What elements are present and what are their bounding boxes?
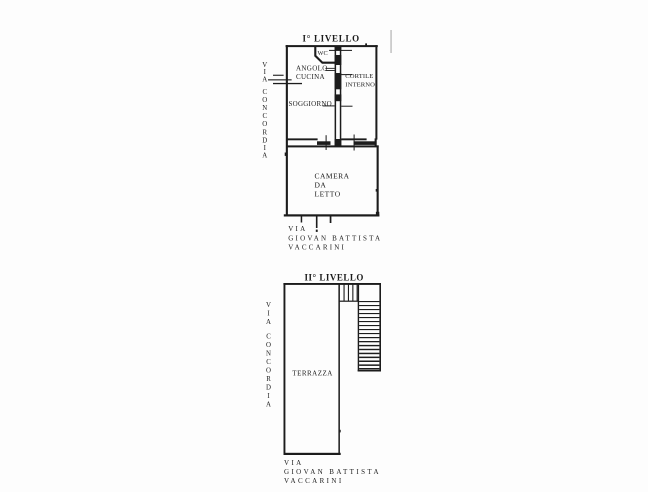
svg-text:GIOVAN BATTISTA: GIOVAN BATTISTA <box>284 468 381 476</box>
svg-text:TERRAZZA: TERRAZZA <box>292 370 333 378</box>
svg-text:A: A <box>266 402 271 409</box>
svg-text:D: D <box>262 137 267 144</box>
svg-text:GIOVAN BATTISTA: GIOVAN BATTISTA <box>288 234 382 242</box>
svg-text:N: N <box>262 105 267 112</box>
svg-text:SOGGIORNO: SOGGIORNO <box>289 100 332 108</box>
svg-text:N: N <box>266 351 271 358</box>
svg-text:WC: WC <box>318 50 328 57</box>
svg-text:CORTILE: CORTILE <box>345 73 373 80</box>
svg-text:C: C <box>266 334 271 341</box>
svg-text:VIA: VIA <box>288 225 307 233</box>
svg-text:C: C <box>262 113 267 120</box>
svg-text:INTERNO: INTERNO <box>345 82 375 89</box>
svg-text:I: I <box>267 393 270 400</box>
svg-text:CAMERA: CAMERA <box>315 172 350 181</box>
svg-text:CUCINA: CUCINA <box>296 73 325 81</box>
svg-text:VIA: VIA <box>284 459 304 467</box>
svg-text:V: V <box>266 302 271 309</box>
svg-text:A: A <box>266 319 271 326</box>
svg-text:O: O <box>266 368 271 375</box>
svg-text:I: I <box>264 69 267 76</box>
svg-text:O: O <box>262 97 267 104</box>
svg-text:DA: DA <box>315 181 327 190</box>
svg-text:C: C <box>262 89 267 96</box>
svg-text:O: O <box>262 121 267 128</box>
svg-text:ANGOLO: ANGOLO <box>296 64 328 72</box>
svg-text:LETTO: LETTO <box>315 190 341 199</box>
svg-text:VACCARINI: VACCARINI <box>284 477 344 485</box>
svg-text:R: R <box>266 376 271 383</box>
svg-text:I° LIVELLO: I° LIVELLO <box>303 33 360 43</box>
svg-text:A: A <box>262 153 267 160</box>
svg-text:VACCARINI: VACCARINI <box>288 243 346 251</box>
svg-text:D: D <box>266 385 271 392</box>
svg-text:A: A <box>262 77 267 84</box>
svg-text:I: I <box>267 311 270 318</box>
svg-text:R: R <box>262 129 267 136</box>
svg-text:II° LIVELLO: II° LIVELLO <box>305 273 364 283</box>
svg-text:O: O <box>266 342 271 349</box>
svg-text:V: V <box>262 62 267 69</box>
svg-text:C: C <box>266 359 271 366</box>
svg-text:I: I <box>264 145 267 152</box>
